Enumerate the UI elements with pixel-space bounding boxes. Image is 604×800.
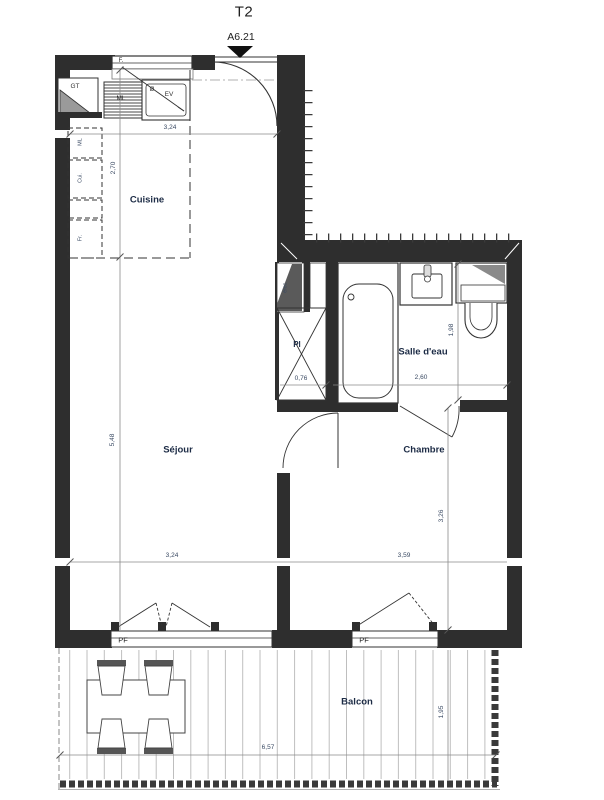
duct-gt-label: GT <box>70 84 79 91</box>
floor-plan-page: T2 A6.21 F. GT ML Ø EV ML Cui. Fr. élec.… <box>0 0 604 800</box>
section-marker-label: A6.21 <box>227 32 254 43</box>
elec-panel <box>277 263 304 312</box>
dim-salle-deau-width: 2,60 <box>415 375 428 382</box>
dim-kitchen-depth: 2,70 <box>111 162 118 175</box>
plan-title: T2 <box>235 5 254 20</box>
bathroom-niche <box>310 263 326 308</box>
pf-chambre-label: PF <box>359 636 369 644</box>
dim-sejour-height: 5,48 <box>110 434 117 447</box>
dim-salle-deau-depth: 1,98 <box>449 324 456 337</box>
bathtub <box>338 263 398 403</box>
vanity-sink <box>400 263 452 305</box>
section-marker-triangle <box>227 46 253 58</box>
pf-sejour-label: PF <box>118 636 128 644</box>
closet-pl-label: Pl <box>293 341 301 349</box>
dim-kitchen-width: 3,24 <box>164 125 177 132</box>
room-label-sejour: Séjour <box>163 445 193 455</box>
column-ml-label: ML <box>78 138 84 146</box>
floorplan-drawing <box>0 0 604 800</box>
washer-ml-label: ML <box>116 96 125 103</box>
elec-label: élec. <box>283 281 289 293</box>
column-fr-label: Fr. <box>78 235 84 241</box>
dim-closet-width: 0,76 <box>295 376 308 383</box>
dim-chambre-height: 3,26 <box>439 510 446 523</box>
bathroom-door <box>400 406 459 437</box>
french-window-sejour <box>111 603 272 647</box>
diameter-symbol: Ø <box>150 87 155 93</box>
dim-sejour-width: 3,24 <box>166 553 179 560</box>
toilet <box>456 263 507 338</box>
dim-chambre-width: 3,59 <box>398 553 411 560</box>
sink-ev-label: EV <box>165 92 174 99</box>
room-label-chambre: Chambre <box>403 445 444 455</box>
room-label-cuisine: Cuisine <box>130 195 164 205</box>
window-f-label: F. <box>119 58 124 64</box>
kitchen-duct-gt <box>58 78 102 118</box>
closet-pl <box>277 308 326 400</box>
column-cui-label: Cui. <box>78 173 84 183</box>
dim-balcon-width: 6,57 <box>262 745 275 752</box>
room-label-balcon: Balcon <box>341 697 373 707</box>
dim-balcon-depth: 1,95 <box>439 706 446 719</box>
room-label-salle-deau: Salle d'eau <box>398 347 447 357</box>
window-f-kitchen <box>112 56 193 79</box>
bedroom-door <box>283 413 338 468</box>
wall-hatch-ticks <box>308 90 512 238</box>
